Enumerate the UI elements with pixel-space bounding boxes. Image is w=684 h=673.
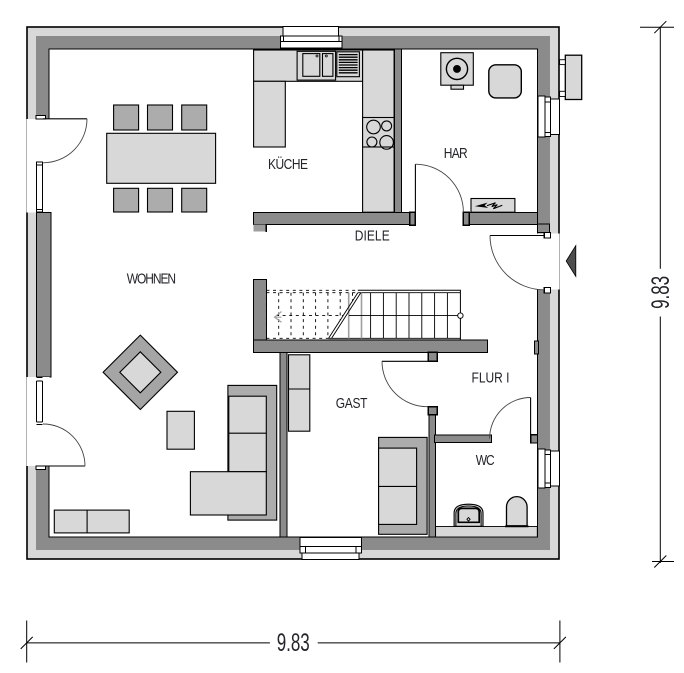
svg-text:KÜCHE: KÜCHE	[268, 156, 308, 172]
svg-text:FLUR I: FLUR I	[472, 369, 510, 385]
svg-text:WOHNEN: WOHNEN	[127, 270, 176, 286]
svg-text:9.83: 9.83	[277, 630, 310, 657]
svg-text:HAR: HAR	[444, 145, 468, 161]
svg-text:DIELE: DIELE	[355, 227, 390, 243]
svg-text:WC: WC	[476, 452, 495, 468]
svg-text:9.83: 9.83	[648, 276, 675, 309]
svg-text:GAST: GAST	[336, 395, 368, 411]
